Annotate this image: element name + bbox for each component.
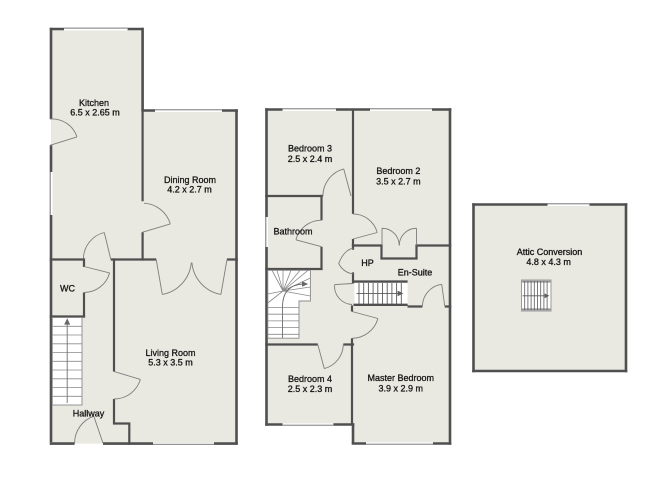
svg-text:HP: HP	[361, 258, 374, 268]
svg-text:Dining Room: Dining Room	[164, 175, 216, 185]
svg-text:4.2 x 2.7 m: 4.2 x 2.7 m	[167, 185, 212, 195]
svg-text:2.5 x 2.3 m: 2.5 x 2.3 m	[288, 384, 333, 394]
svg-text:Bedroom 4: Bedroom 4	[288, 374, 332, 384]
svg-text:Bedroom 3: Bedroom 3	[288, 144, 332, 154]
svg-text:Master Bedroom: Master Bedroom	[368, 373, 435, 383]
svg-text:6.5 x 2.65 m: 6.5 x 2.65 m	[70, 108, 120, 118]
svg-text:Living Room: Living Room	[145, 348, 195, 358]
svg-text:2.5 x 2.4 m: 2.5 x 2.4 m	[288, 154, 333, 164]
svg-text:4.8 x 4.3 m: 4.8 x 4.3 m	[526, 257, 571, 267]
svg-text:En-Suite: En-Suite	[398, 267, 433, 277]
svg-text:Kitchen: Kitchen	[79, 98, 109, 108]
svg-text:3.5 x 2.7 m: 3.5 x 2.7 m	[376, 177, 421, 187]
svg-text:3.9 x 2.9 m: 3.9 x 2.9 m	[379, 383, 424, 393]
svg-text:Bathroom: Bathroom	[273, 227, 312, 237]
svg-text:5.3 x 3.5 m: 5.3 x 3.5 m	[148, 358, 193, 368]
svg-text:Hallway: Hallway	[73, 409, 105, 419]
svg-text:Attic Conversion: Attic Conversion	[517, 247, 583, 257]
svg-text:WC: WC	[60, 284, 75, 294]
svg-text:Bedroom 2: Bedroom 2	[376, 166, 420, 176]
